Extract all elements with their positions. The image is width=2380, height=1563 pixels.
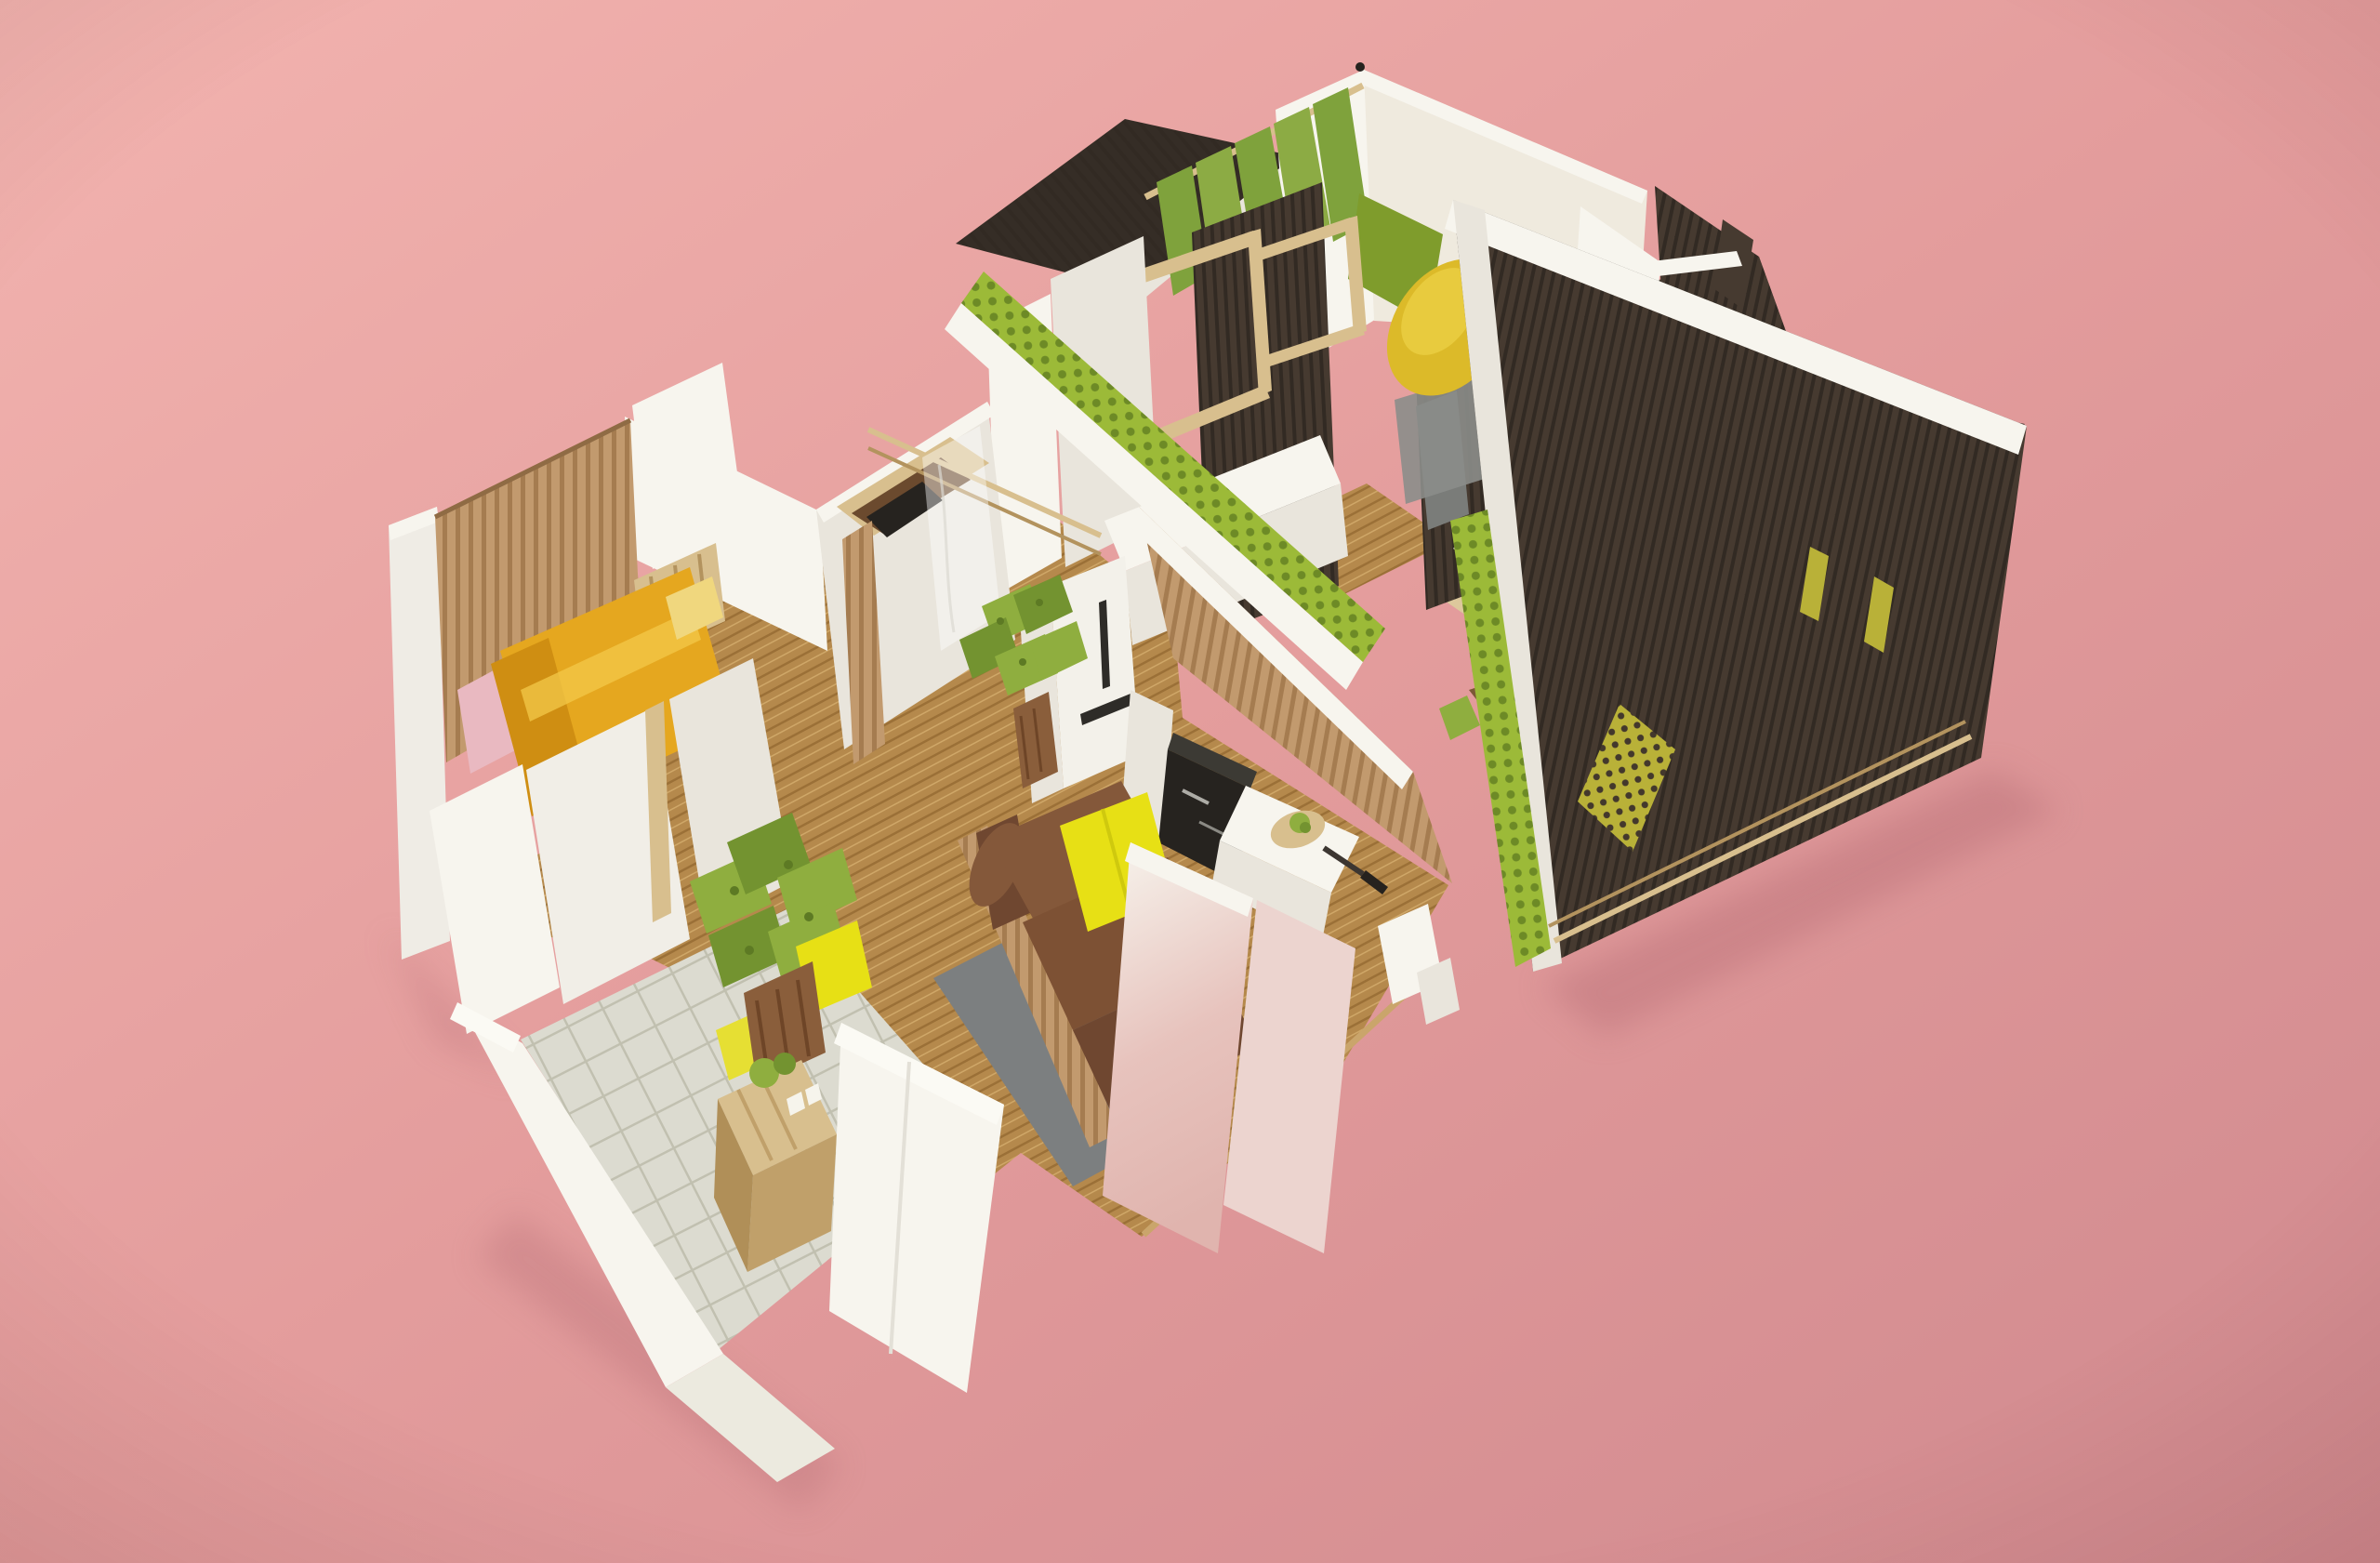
photo-vignette	[0, 0, 2380, 1563]
scale-model-photo	[0, 0, 2380, 1563]
photo-stage	[0, 0, 2380, 1563]
